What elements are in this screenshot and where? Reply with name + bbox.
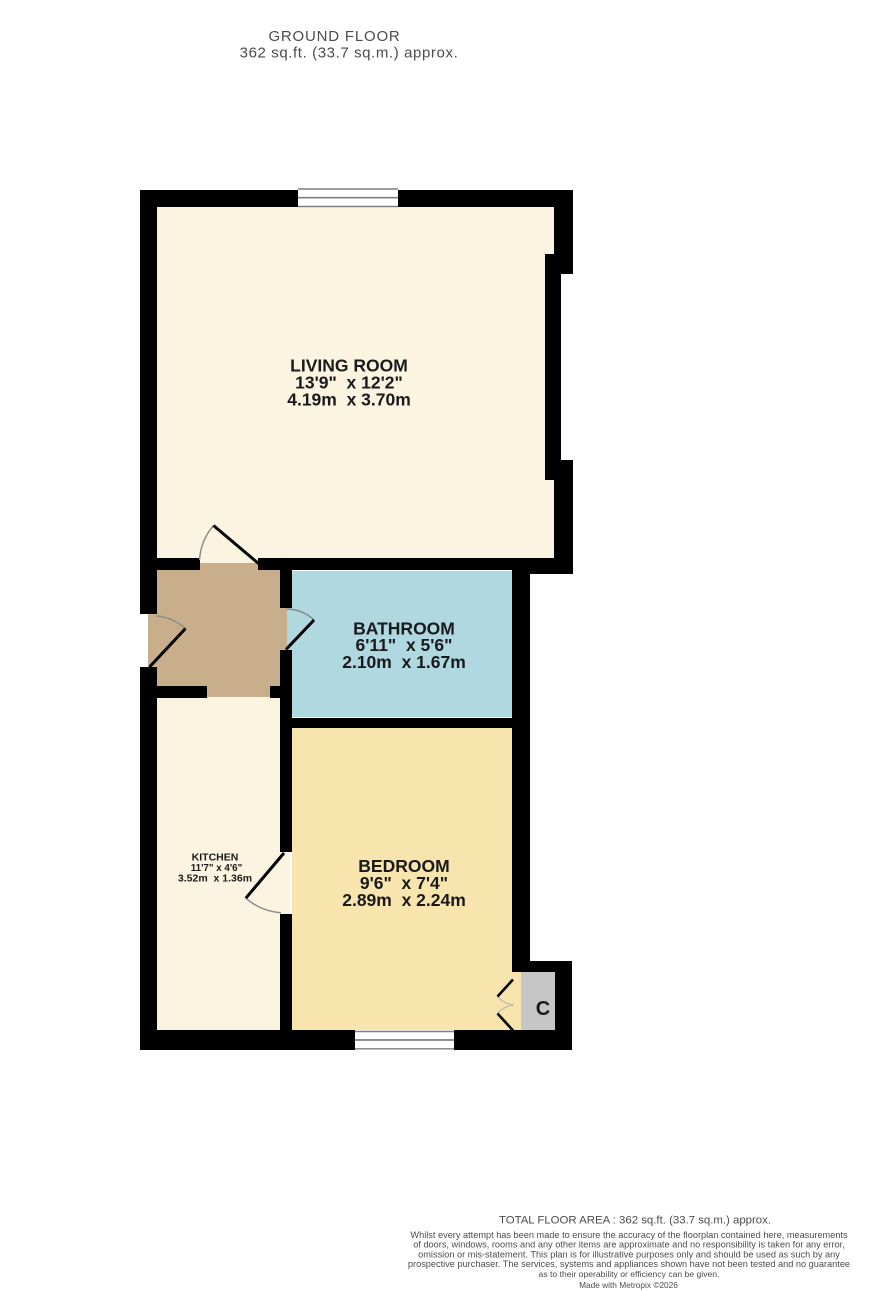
svg-text:2.89m x 2.24m: 2.89m x 2.24m: [342, 890, 466, 910]
svg-text:as to their operability or eff: as to their operability or efficiency ca…: [539, 1269, 720, 1279]
svg-text:C: C: [536, 998, 550, 1020]
svg-text:4.19m x 3.70m: 4.19m x 3.70m: [287, 390, 411, 410]
svg-text:TOTAL FLOOR AREA : 362 sq.ft.: TOTAL FLOOR AREA : 362 sq.ft. (33.7 sq.m…: [499, 1215, 771, 1227]
svg-text:Whilst every attempt has been: Whilst every attempt has been made to en…: [410, 1230, 848, 1240]
svg-text:prospective purchaser. The ser: prospective purchaser. The services, sys…: [408, 1259, 850, 1269]
svg-text:omission or mis-statement. Thi: omission or mis-statement. This plan is …: [418, 1249, 840, 1259]
svg-text:of doors, windows, rooms and a: of doors, windows, rooms and any other i…: [413, 1240, 845, 1250]
svg-text:3.52m x 1.36m: 3.52m x 1.36m: [178, 873, 252, 885]
svg-text:Made with Metropix ©2026: Made with Metropix ©2026: [579, 1280, 678, 1290]
svg-text:KITCHEN: KITCHEN: [192, 852, 239, 864]
svg-text:GROUND FLOOR: GROUND FLOOR: [268, 28, 400, 45]
svg-text:2.10m x 1.67m: 2.10m x 1.67m: [342, 652, 466, 672]
svg-text:362 sq.ft. (33.7 sq.m.) approx: 362 sq.ft. (33.7 sq.m.) approx.: [240, 45, 459, 62]
